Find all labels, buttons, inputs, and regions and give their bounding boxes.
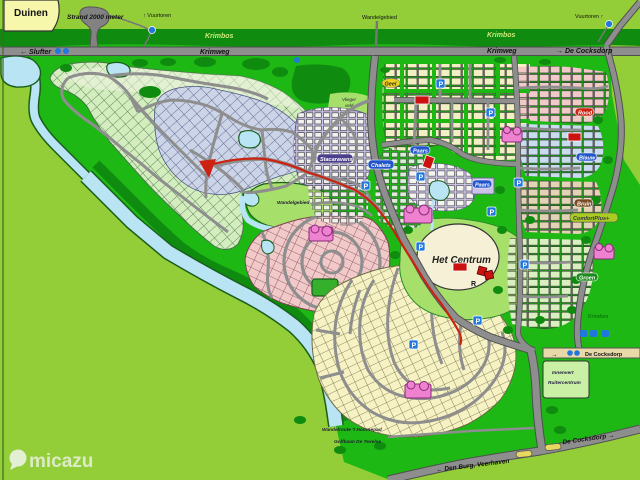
svg-text:Stacaravans: Stacaravans — [320, 157, 352, 163]
svg-text:→ De Cocksdorp: → De Cocksdorp — [556, 48, 613, 55]
svg-text:P: P — [476, 319, 481, 326]
svg-text:P: P — [419, 175, 424, 182]
svg-text:Innenvert: Innenvert — [552, 370, 574, 376]
svg-text:Vlieger: Vlieger — [342, 97, 357, 102]
svg-text:P: P — [439, 82, 444, 89]
svg-text:micazu: micazu — [29, 451, 93, 472]
svg-text:Vuurtoren ↑: Vuurtoren ↑ — [575, 14, 603, 20]
svg-text:Blauw: Blauw — [579, 156, 596, 162]
svg-text:Krimweg: Krimweg — [200, 49, 230, 56]
svg-text:De Cocksdorp: De Cocksdorp — [585, 352, 623, 358]
svg-text:Groen: Groen — [579, 276, 596, 282]
svg-text:Krimbos: Krimbos — [588, 314, 609, 320]
svg-text:→: → — [551, 352, 558, 359]
svg-text:Wandelroute 't Hoornepad: Wandelroute 't Hoornepad — [322, 427, 383, 433]
svg-text:ComfortPlus+: ComfortPlus+ — [573, 216, 610, 222]
svg-text:Geel: Geel — [385, 82, 397, 88]
svg-text:Krimbos: Krimbos — [487, 32, 516, 39]
svg-text:Krimbos: Krimbos — [205, 33, 234, 40]
svg-text:P: P — [489, 111, 494, 118]
svg-text:Krimweg: Krimweg — [487, 48, 517, 55]
svg-text:P: P — [523, 263, 528, 270]
svg-text:P: P — [517, 181, 522, 188]
svg-text:P: P — [364, 184, 369, 191]
svg-text:Strand 2000 meter: Strand 2000 meter — [67, 14, 124, 21]
svg-text:Paars: Paars — [475, 183, 490, 189]
svg-text:Golfbaan De Texelse: Golfbaan De Texelse — [334, 439, 381, 445]
svg-text:Wandelgebied: Wandelgebied — [362, 15, 397, 21]
svg-text:P: P — [419, 245, 424, 252]
svg-text:Chalets: Chalets — [371, 163, 391, 169]
svg-text:Bruin: Bruin — [577, 202, 592, 208]
svg-text:Wandelgebied: Wandelgebied — [277, 200, 310, 206]
svg-text:Rood: Rood — [578, 111, 593, 117]
svg-text:Ruitercentrum: Ruitercentrum — [548, 380, 582, 386]
svg-text:← Slufter: ← Slufter — [20, 49, 52, 56]
svg-text:↑ Vuurtoren: ↑ Vuurtoren — [143, 13, 171, 19]
svg-text:P: P — [412, 343, 417, 350]
svg-text:R: R — [471, 281, 476, 288]
svg-text:P: P — [490, 210, 495, 217]
svg-text:Duinen: Duinen — [14, 8, 48, 19]
svg-text:Paars: Paars — [413, 149, 428, 155]
